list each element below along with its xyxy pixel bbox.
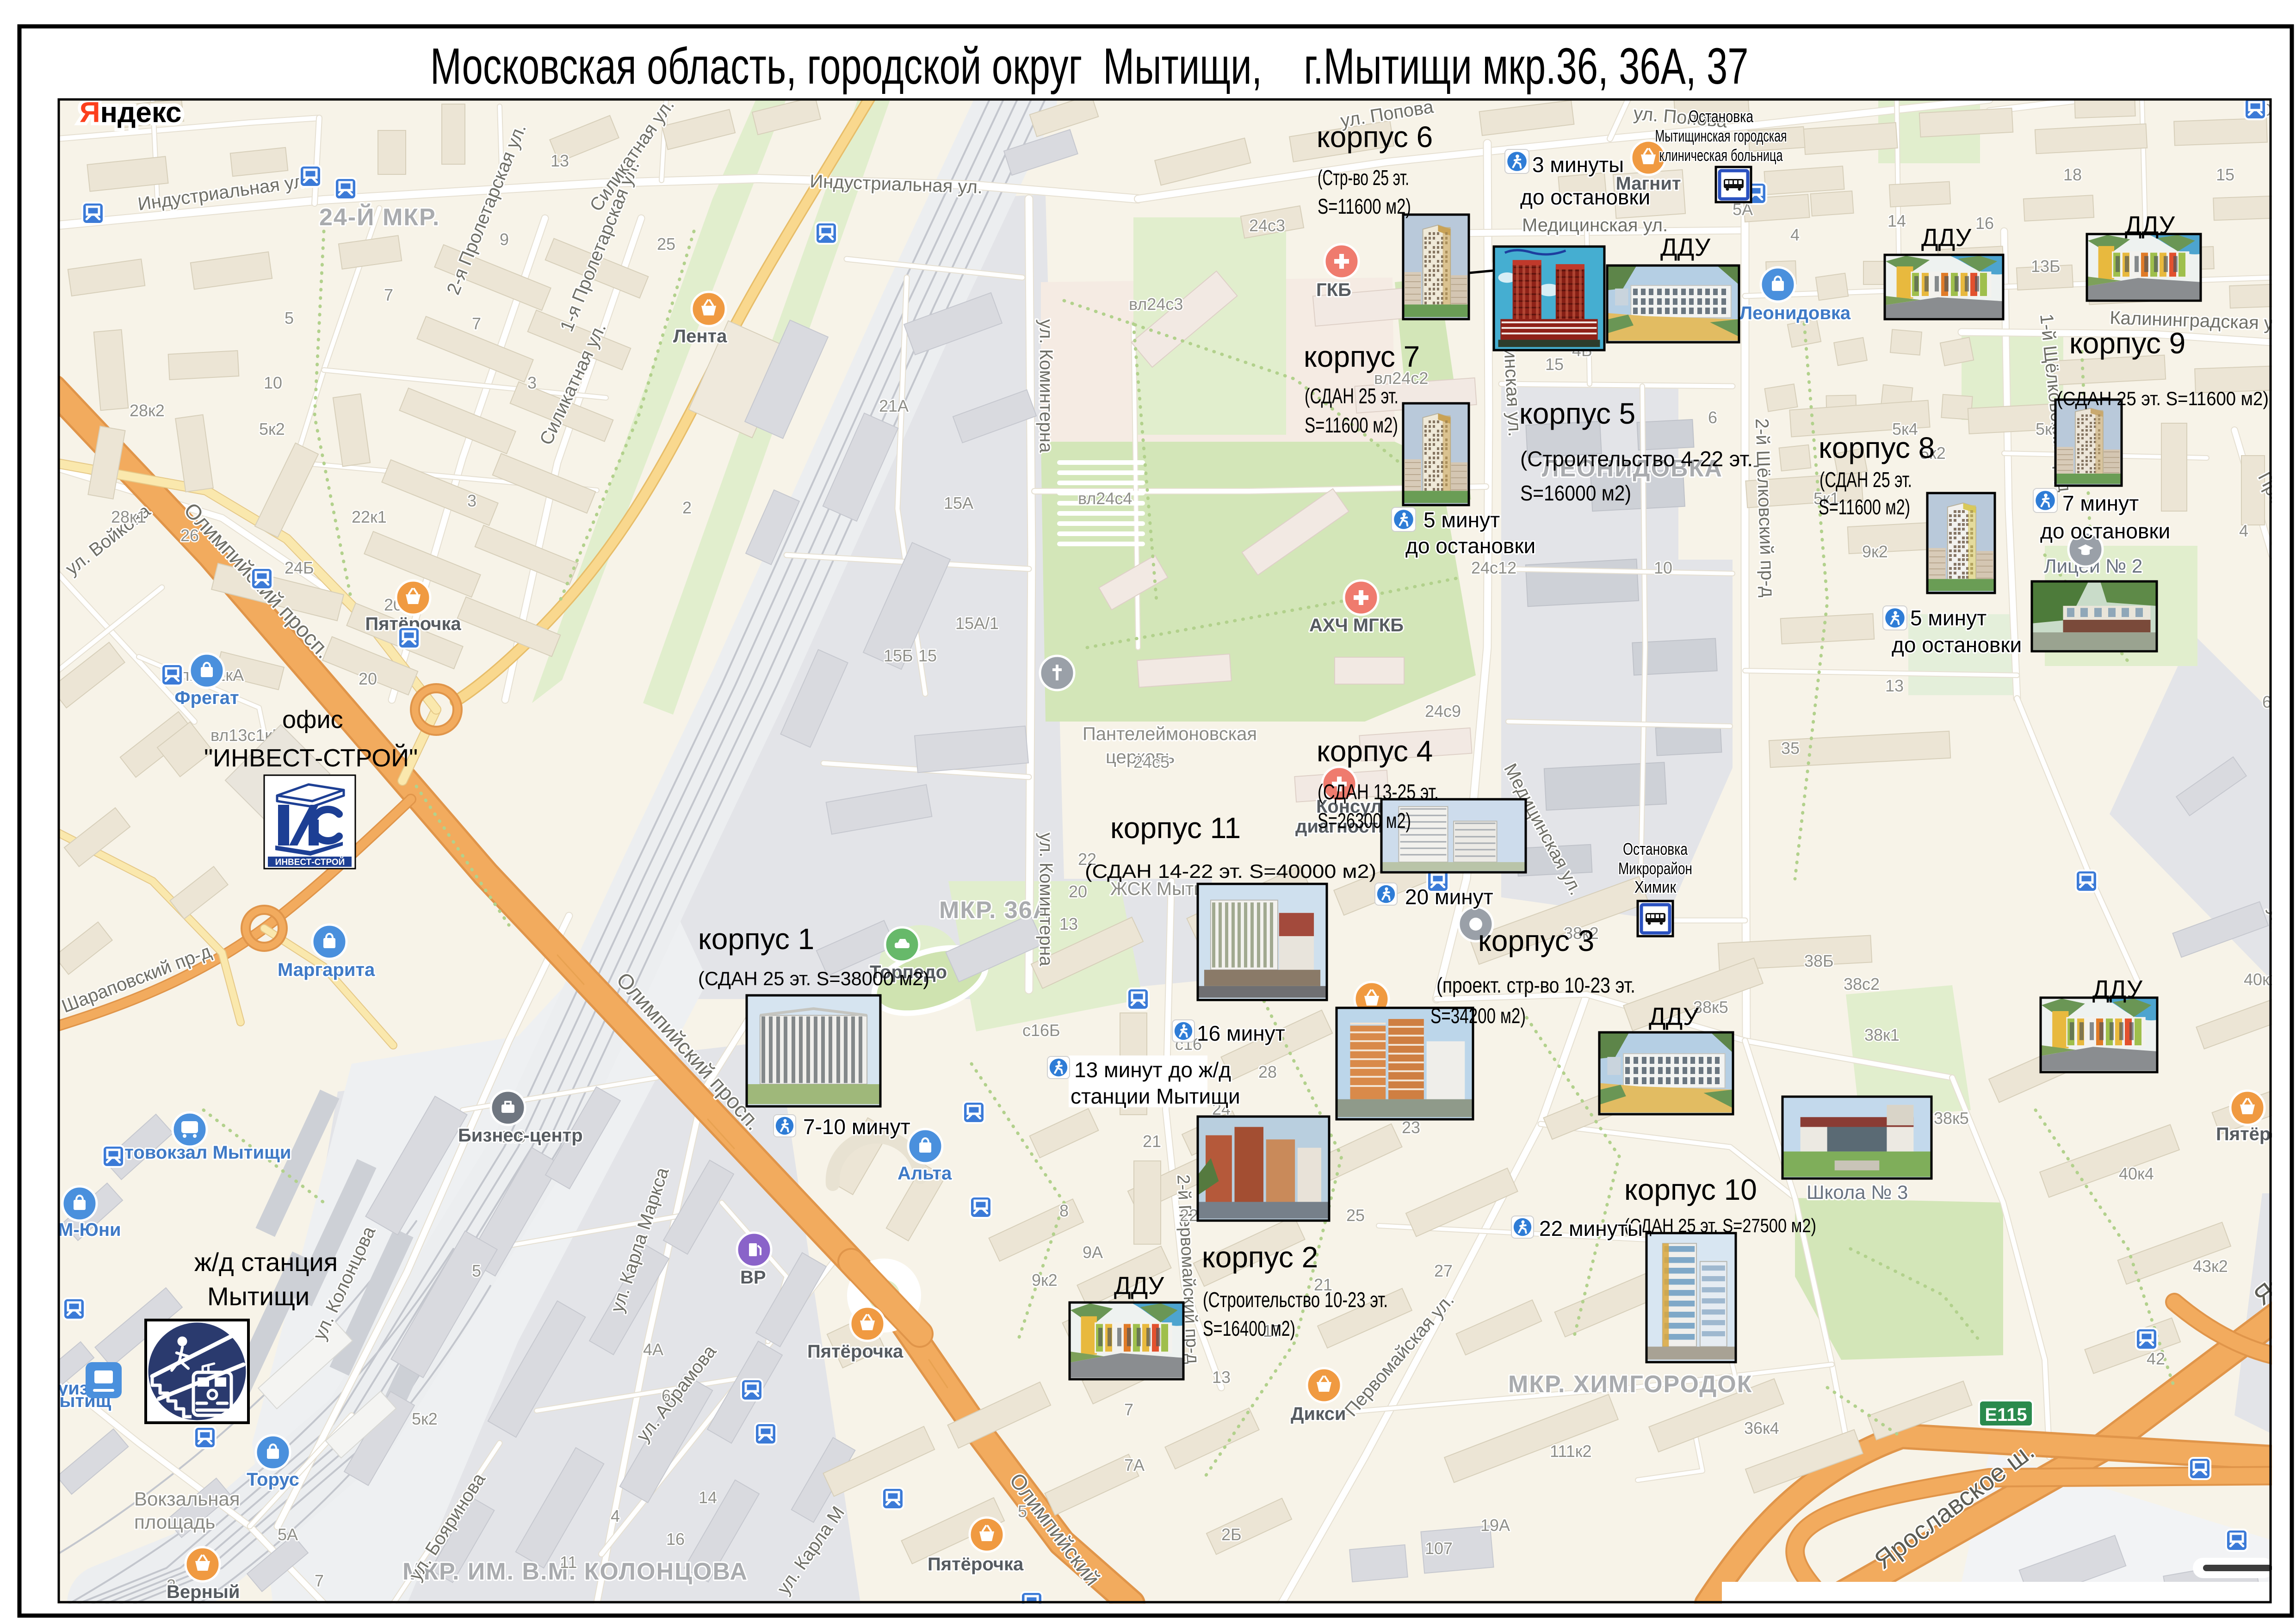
svg-text:111к2: 111к2 bbox=[1550, 1442, 1592, 1461]
svg-text:ж/д станция: ж/д станция bbox=[194, 1247, 338, 1277]
svg-text:ДДУ: ДДУ bbox=[1649, 1003, 1699, 1031]
svg-text:9к2: 9к2 bbox=[1862, 542, 1888, 561]
svg-text:корпус 5: корпус 5 bbox=[1519, 397, 1635, 430]
svg-text:15: 15 bbox=[2216, 165, 2234, 184]
svg-text:корпус 2: корпус 2 bbox=[1202, 1240, 1318, 1274]
svg-text:5А: 5А bbox=[278, 1525, 298, 1544]
svg-text:7: 7 bbox=[315, 1571, 324, 1590]
svg-text:Яндекс: Яндекс bbox=[80, 97, 182, 129]
svg-text:21А: 21А bbox=[879, 396, 909, 415]
svg-text:107: 107 bbox=[1425, 1539, 1453, 1558]
svg-text:Торус: Торус bbox=[247, 1469, 299, 1490]
svg-text:15: 15 bbox=[918, 646, 937, 665]
svg-text:(СДАН 14-22 эт. S=40000 м2): (СДАН 14-22 эт. S=40000 м2) bbox=[1085, 860, 1376, 882]
svg-text:Остановка: Остановка bbox=[1623, 839, 1688, 858]
svg-text:28: 28 bbox=[1258, 1062, 1277, 1081]
svg-text:М-Юни: М-Юни bbox=[58, 1220, 121, 1240]
svg-text:E115: E115 bbox=[1985, 1405, 2027, 1425]
svg-text:5: 5 bbox=[1018, 1502, 1027, 1521]
svg-text:S=16000 м2): S=16000 м2) bbox=[1520, 481, 1631, 505]
svg-text:28к2: 28к2 bbox=[130, 401, 165, 420]
svg-text:офис: офис bbox=[282, 706, 343, 734]
svg-text:15Б: 15Б bbox=[884, 646, 913, 665]
svg-text:4: 4 bbox=[1790, 225, 1800, 244]
svg-text:ИНВЕСТ-СТРОЙ: ИНВЕСТ-СТРОЙ bbox=[275, 857, 345, 867]
svg-text:до остановки: до остановки bbox=[2040, 519, 2170, 543]
svg-text:(СДАН 25 эт. S=11600 м2): (СДАН 25 эт. S=11600 м2) bbox=[2057, 388, 2269, 409]
svg-text:43к2: 43к2 bbox=[2193, 1257, 2228, 1276]
svg-text:22: 22 bbox=[1180, 1206, 1198, 1225]
svg-text:3: 3 bbox=[527, 373, 537, 392]
svg-text:корпус 3: корпус 3 bbox=[1478, 924, 1594, 957]
svg-text:ДДУ: ДДУ bbox=[1114, 1272, 1164, 1300]
svg-text:20: 20 bbox=[1069, 882, 1087, 901]
svg-text:S=26300 м2): S=26300 м2) bbox=[1318, 808, 1411, 833]
svg-text:21: 21 bbox=[1143, 1132, 1161, 1151]
svg-text:9к2: 9к2 bbox=[1032, 1271, 1058, 1290]
svg-text:15А: 15А bbox=[944, 494, 973, 512]
svg-text:Леонидовка: Леонидовка bbox=[1739, 303, 1851, 323]
svg-text:26: 26 bbox=[180, 526, 199, 545]
svg-text:Дикси: Дикси bbox=[1291, 1404, 1346, 1424]
svg-text:20 минут: 20 минут bbox=[1405, 885, 1493, 909]
svg-text:(Стр-во 25 эт.: (Стр-во 25 эт. bbox=[1318, 166, 1409, 190]
svg-text:(СДАН 13-25 эт.: (СДАН 13-25 эт. bbox=[1318, 780, 1439, 804]
svg-text:23: 23 bbox=[1402, 1118, 1420, 1137]
svg-text:5 минут: 5 минут bbox=[1423, 508, 1500, 532]
svg-text:корпус 10: корпус 10 bbox=[1624, 1173, 1757, 1206]
svg-text:24с12: 24с12 bbox=[1471, 558, 1516, 577]
svg-text:7А: 7А bbox=[1124, 1456, 1145, 1475]
svg-text:ул. Коминтерна: ул. Коминтерна bbox=[1036, 833, 1056, 967]
svg-text:корпус 9: корпус 9 bbox=[2069, 327, 2185, 360]
svg-text:24с9: 24с9 bbox=[1425, 702, 1461, 721]
svg-text:ВР: ВР bbox=[740, 1267, 766, 1288]
svg-text:15А/1: 15А/1 bbox=[955, 614, 999, 633]
svg-text:24Б: 24Б bbox=[285, 558, 314, 577]
svg-text:площадь: площадь bbox=[134, 1511, 215, 1533]
svg-text:корпус 11: корпус 11 bbox=[1110, 811, 1241, 845]
svg-text:корпус 1: корпус 1 bbox=[698, 922, 814, 956]
svg-text:3: 3 bbox=[467, 491, 477, 510]
svg-text:корпус 6: корпус 6 bbox=[1317, 120, 1433, 154]
svg-text:ул. Коминтерна: ул. Коминтерна bbox=[1036, 319, 1056, 453]
svg-text:11: 11 bbox=[560, 1553, 577, 1572]
svg-text:S=11600 м2): S=11600 м2) bbox=[1305, 413, 1398, 437]
svg-text:4А: 4А bbox=[643, 1340, 663, 1359]
svg-text:5: 5 bbox=[472, 1261, 481, 1280]
svg-text:36к4: 36к4 bbox=[1744, 1419, 1779, 1438]
svg-text:S=11600 м2): S=11600 м2) bbox=[1819, 495, 1910, 519]
svg-text:38к1: 38к1 bbox=[1864, 1025, 1900, 1044]
svg-text:13: 13 bbox=[1059, 914, 1078, 933]
svg-text:Микрорайон: Микрорайон bbox=[1618, 859, 1692, 878]
svg-text:Бизнес-центр: Бизнес-центр bbox=[458, 1125, 583, 1146]
svg-text:7: 7 bbox=[1124, 1400, 1133, 1419]
svg-text:ДДУ: ДДУ bbox=[2125, 211, 2175, 239]
svg-text:4: 4 bbox=[611, 1506, 620, 1525]
svg-text:станции Мытищи: станции Мытищи bbox=[1071, 1084, 1240, 1108]
svg-text:с16Б: с16Б bbox=[1022, 1021, 1060, 1040]
svg-text:10: 10 bbox=[1654, 558, 1672, 577]
svg-text:(СДАН 25 эт.: (СДАН 25 эт. bbox=[1305, 384, 1399, 408]
svg-text:13: 13 bbox=[1212, 1368, 1231, 1387]
svg-text:корпус 8: корпус 8 bbox=[1819, 431, 1935, 464]
svg-text:14: 14 bbox=[699, 1488, 717, 1507]
svg-text:Остановка: Остановка bbox=[1689, 107, 1754, 126]
svg-text:ДДУ: ДДУ bbox=[2092, 975, 2143, 1003]
svg-text:15: 15 bbox=[1545, 355, 1564, 374]
svg-text:(СДАН 25 эт. S=38000 м2): (СДАН 25 эт. S=38000 м2) bbox=[698, 968, 929, 989]
svg-text:38Б: 38Б bbox=[1804, 951, 1834, 970]
svg-text:до остановки: до остановки bbox=[1892, 633, 2022, 657]
svg-text:5к2: 5к2 bbox=[412, 1409, 438, 1428]
svg-text:22к1: 22к1 bbox=[352, 507, 387, 526]
svg-text:24-Й МКР.: 24-Й МКР. bbox=[319, 204, 440, 231]
svg-text:вл24с3: вл24с3 bbox=[1129, 295, 1183, 314]
svg-text:27: 27 bbox=[1434, 1261, 1453, 1280]
svg-text:6: 6 bbox=[1708, 408, 1717, 427]
svg-text:автовокзал Мытищи: автовокзал Мытищи bbox=[103, 1142, 291, 1163]
svg-text:Пятёрочка: Пятёрочка bbox=[928, 1554, 1024, 1574]
svg-text:9А: 9А bbox=[1083, 1243, 1103, 1262]
svg-text:корпус 4: корпус 4 bbox=[1317, 734, 1433, 768]
svg-text:8: 8 bbox=[1059, 1201, 1069, 1220]
svg-text:Фрегат: Фрегат bbox=[174, 688, 239, 708]
svg-text:(СДАН 25 эт. S=27500 м2): (СДАН 25 эт. S=27500 м2) bbox=[1624, 1215, 1816, 1236]
svg-text:13: 13 bbox=[551, 151, 569, 170]
svg-text:28к1: 28к1 bbox=[111, 507, 146, 526]
svg-text:"ИНВЕСТ-СТРОЙ": "ИНВЕСТ-СТРОЙ" bbox=[204, 744, 418, 772]
svg-text:35: 35 bbox=[1781, 739, 1800, 758]
svg-text:Верный: Верный bbox=[167, 1582, 240, 1602]
svg-text:16: 16 bbox=[666, 1530, 685, 1549]
svg-text:(СДАН 25 эт.: (СДАН 25 эт. bbox=[1819, 468, 1912, 492]
svg-text:Мытищи: Мытищи bbox=[207, 1282, 309, 1311]
svg-text:ГКБ: ГКБ bbox=[1316, 280, 1351, 300]
svg-text:5к2: 5к2 bbox=[259, 420, 285, 438]
svg-text:Пятёроч: Пятёроч bbox=[2216, 1124, 2292, 1144]
svg-text:7: 7 bbox=[384, 285, 393, 304]
svg-text:АХЧ МГКБ: АХЧ МГКБ bbox=[1309, 615, 1404, 636]
svg-text:4: 4 bbox=[2239, 521, 2248, 540]
svg-text:(проект. стр-во 10-23 эт.: (проект. стр-во 10-23 эт. bbox=[1436, 973, 1635, 997]
svg-text:24с5: 24с5 bbox=[1133, 753, 1170, 771]
svg-text:7-10 минут: 7-10 минут bbox=[803, 1115, 910, 1139]
svg-text:клиническая больница: клиническая больница bbox=[1659, 146, 1783, 165]
svg-text:18: 18 bbox=[2063, 165, 2082, 184]
svg-text:20: 20 bbox=[359, 669, 377, 688]
svg-text:до остановки: до остановки bbox=[1405, 534, 1535, 558]
svg-text:S=34200 м2): S=34200 м2) bbox=[1430, 1004, 1526, 1028]
svg-text:25: 25 bbox=[1346, 1206, 1365, 1225]
svg-text:S=16400 м2): S=16400 м2) bbox=[1203, 1316, 1295, 1340]
svg-text:Маргарита: Маргарита bbox=[278, 960, 375, 980]
svg-text:7 минут: 7 минут bbox=[2062, 491, 2139, 515]
svg-text:10: 10 bbox=[264, 373, 282, 392]
svg-text:13 минут до ж/д: 13 минут до ж/д bbox=[1074, 1058, 1231, 1082]
svg-text:Лента: Лента bbox=[673, 326, 727, 346]
svg-text:корпус 7: корпус 7 bbox=[1304, 340, 1420, 373]
svg-text:7: 7 bbox=[472, 314, 481, 333]
svg-text:Школа № 3: Школа № 3 bbox=[1807, 1181, 1908, 1203]
svg-text:ДДУ: ДДУ bbox=[1921, 224, 1972, 252]
svg-text:2Б: 2Б bbox=[1221, 1525, 1242, 1544]
svg-text:42: 42 bbox=[2147, 1349, 2165, 1368]
svg-text:22 минуты: 22 минуты bbox=[1539, 1216, 1643, 1240]
svg-text:Химик: Химик bbox=[1634, 877, 1676, 896]
svg-text:5 минут: 5 минут bbox=[1910, 606, 1987, 630]
svg-text:16 минут: 16 минут bbox=[1197, 1021, 1285, 1045]
svg-text:Медицинская ул.: Медицинская ул. bbox=[1522, 215, 1668, 235]
svg-text:вл24с4: вл24с4 bbox=[1078, 489, 1132, 508]
svg-text:Вокзальная: Вокзальная bbox=[134, 1488, 240, 1510]
svg-text:до остановки: до остановки bbox=[1520, 185, 1650, 209]
svg-text:9: 9 bbox=[500, 230, 509, 249]
svg-text:3 минуты: 3 минуты bbox=[1532, 153, 1624, 177]
svg-text:25: 25 bbox=[657, 235, 675, 253]
svg-text:(Строительство 4-22 эт.: (Строительство 4-22 эт. bbox=[1520, 447, 1753, 471]
svg-text:14: 14 bbox=[1888, 211, 1906, 230]
svg-text:6: 6 bbox=[662, 1386, 671, 1405]
svg-text:5: 5 bbox=[285, 309, 294, 327]
svg-text:Пятёрочка: Пятёрочка bbox=[807, 1341, 904, 1362]
svg-text:13: 13 bbox=[1885, 676, 1904, 695]
svg-text:Мытищинская городская: Мытищинская городская bbox=[1655, 126, 1787, 145]
svg-text:16: 16 bbox=[1975, 214, 1994, 233]
svg-text:МКР. 36А: МКР. 36А bbox=[939, 897, 1051, 924]
svg-text:38с2: 38с2 bbox=[1844, 975, 1880, 994]
svg-text:(Строительство 10-23 эт.: (Строительство 10-23 эт. bbox=[1203, 1288, 1388, 1312]
svg-text:S=11600 м2): S=11600 м2) bbox=[1318, 194, 1411, 218]
svg-text:13Б: 13Б bbox=[2031, 257, 2061, 276]
svg-text:40к1: 40к1 bbox=[2244, 970, 2279, 989]
svg-text:МКР. ХИМГОРОДОК: МКР. ХИМГОРОДОК bbox=[1508, 1371, 1752, 1398]
svg-text:ДДУ: ДДУ bbox=[1660, 234, 1711, 261]
svg-text:19А: 19А bbox=[1480, 1516, 1510, 1535]
svg-text:Пантелеймоновская: Пантелеймоновская bbox=[1083, 724, 1257, 744]
svg-text:24с3: 24с3 bbox=[1249, 216, 1285, 235]
svg-text:40к4: 40к4 bbox=[2119, 1164, 2154, 1183]
svg-text:Альта: Альта bbox=[897, 1163, 952, 1184]
svg-text:38к5: 38к5 bbox=[1934, 1109, 1969, 1128]
svg-text:2: 2 bbox=[682, 498, 692, 517]
